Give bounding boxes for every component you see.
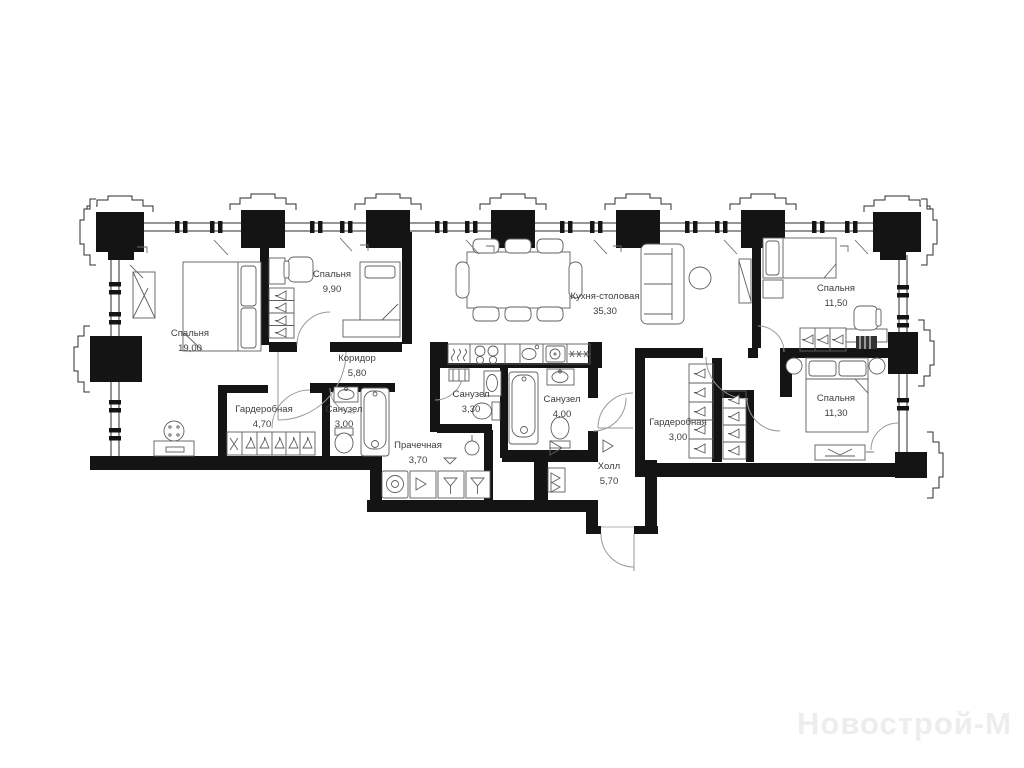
svg-text:Спальня: Спальня bbox=[171, 328, 209, 339]
desk bbox=[269, 258, 285, 284]
radiator bbox=[856, 336, 877, 349]
room-label-bath-3-00: Санузел 3,00 bbox=[325, 404, 362, 430]
room-label-corridor: Коридор 5,80 bbox=[338, 353, 376, 379]
room-label-hall: Холл 5,70 bbox=[598, 461, 620, 487]
bathtub bbox=[361, 388, 389, 456]
svg-text:Санузел: Санузел bbox=[325, 404, 362, 415]
svg-text:Санузел: Санузел bbox=[543, 394, 580, 405]
svg-text:Гардеробная: Гардеробная bbox=[649, 417, 706, 428]
svg-text:Прачечная: Прачечная bbox=[394, 440, 442, 451]
svg-text:3,70: 3,70 bbox=[409, 455, 428, 466]
toilet-tank bbox=[492, 402, 500, 420]
small-sink bbox=[465, 441, 479, 455]
pillow bbox=[241, 266, 256, 306]
svg-text:4,70: 4,70 bbox=[253, 419, 272, 430]
dining-chair bbox=[456, 262, 469, 298]
svg-text:35,30: 35,30 bbox=[593, 306, 617, 317]
room-label-bedroom-9-90: Спальня 9,90 bbox=[313, 269, 351, 295]
freezer-asterisks bbox=[569, 351, 576, 357]
wardrobe-hangers bbox=[227, 432, 315, 455]
laundry-unit bbox=[466, 471, 490, 498]
pillow bbox=[809, 361, 836, 376]
toilet bbox=[335, 433, 353, 453]
svg-text:Спальня: Спальня bbox=[817, 283, 855, 294]
bedroom-11-50-furniture bbox=[763, 238, 887, 351]
dresser bbox=[154, 441, 194, 456]
svg-text:9,90: 9,90 bbox=[323, 284, 342, 295]
svg-text:19,00: 19,00 bbox=[178, 343, 202, 354]
dining-chair bbox=[473, 307, 499, 321]
bedroom-19-furniture bbox=[133, 262, 261, 456]
pillow bbox=[365, 266, 395, 278]
dining-chair bbox=[537, 239, 563, 253]
svg-text:Спальня: Спальня bbox=[817, 393, 855, 404]
svg-text:Гардеробная: Гардеробная bbox=[235, 404, 292, 415]
office-chair bbox=[854, 306, 878, 330]
hob-heat bbox=[452, 349, 467, 361]
svg-text:Спальня: Спальня bbox=[313, 269, 351, 280]
watermark: Новострой-М bbox=[797, 706, 1012, 742]
nightstand bbox=[869, 358, 885, 374]
room-label-wardrobe-4-70: Гардеробная 4,70 bbox=[235, 404, 292, 430]
shelf-glyph bbox=[444, 458, 456, 464]
pillow bbox=[241, 308, 256, 348]
balcony-door bbox=[871, 423, 898, 450]
coffee-table bbox=[689, 267, 711, 289]
mirror-glyph bbox=[603, 440, 613, 452]
bedroom-9-90-door bbox=[297, 312, 330, 345]
svg-text:4,00: 4,00 bbox=[553, 409, 572, 420]
round-table bbox=[164, 421, 184, 441]
office-chair bbox=[288, 257, 313, 282]
burner bbox=[475, 346, 485, 356]
wardrobe-4-70-furniture bbox=[227, 432, 315, 455]
wardrobe-3-00-furniture bbox=[689, 364, 713, 458]
toilet bbox=[551, 417, 569, 439]
dining-chair bbox=[505, 239, 531, 253]
room-label-kitchen-dining: Кухня-столовая 35,30 bbox=[571, 291, 640, 317]
closet-11-30 bbox=[723, 391, 746, 459]
svg-text:Кухня-столовая: Кухня-столовая bbox=[571, 291, 640, 302]
svg-text:5,70: 5,70 bbox=[600, 476, 619, 487]
svg-text:3,00: 3,00 bbox=[335, 419, 354, 430]
pillow bbox=[766, 241, 779, 275]
laundry-unit bbox=[410, 471, 436, 498]
washing-machine bbox=[382, 471, 408, 498]
dishwasher bbox=[546, 346, 565, 362]
svg-text:3,30: 3,30 bbox=[462, 404, 481, 415]
svg-text:Санузел: Санузел bbox=[452, 389, 489, 400]
svg-text:Коридор: Коридор bbox=[338, 353, 376, 364]
dining-chair bbox=[537, 307, 563, 321]
laundry-unit bbox=[438, 471, 464, 498]
svg-text:Холл: Холл bbox=[598, 461, 620, 472]
room-label-bedroom-11-50: Спальня 11,50 bbox=[817, 283, 855, 309]
svg-text:5,80: 5,80 bbox=[348, 368, 367, 379]
svg-text:3,00: 3,00 bbox=[669, 432, 688, 443]
floor-plan-page: Спальня 19,00 Спальня 9,90 Коридор 5,80 … bbox=[0, 0, 1024, 768]
nightstand bbox=[786, 358, 802, 374]
room-label-bath-4-00: Санузел 4,00 bbox=[543, 394, 580, 420]
dining-chair bbox=[505, 307, 531, 321]
entrance-door bbox=[601, 534, 634, 571]
pillow bbox=[839, 361, 866, 376]
svg-text:11,50: 11,50 bbox=[824, 298, 847, 309]
svg-text:11,30: 11,30 bbox=[824, 408, 847, 419]
nightstand bbox=[763, 280, 783, 298]
bed-bench bbox=[343, 320, 400, 337]
room-label-laundry: Прачечная 3,70 bbox=[394, 440, 442, 466]
floor-plan: Спальня 19,00 Спальня 9,90 Коридор 5,80 … bbox=[0, 0, 1024, 768]
kitchen-sink bbox=[522, 349, 536, 360]
dining-table bbox=[467, 252, 570, 308]
bench bbox=[815, 445, 865, 460]
